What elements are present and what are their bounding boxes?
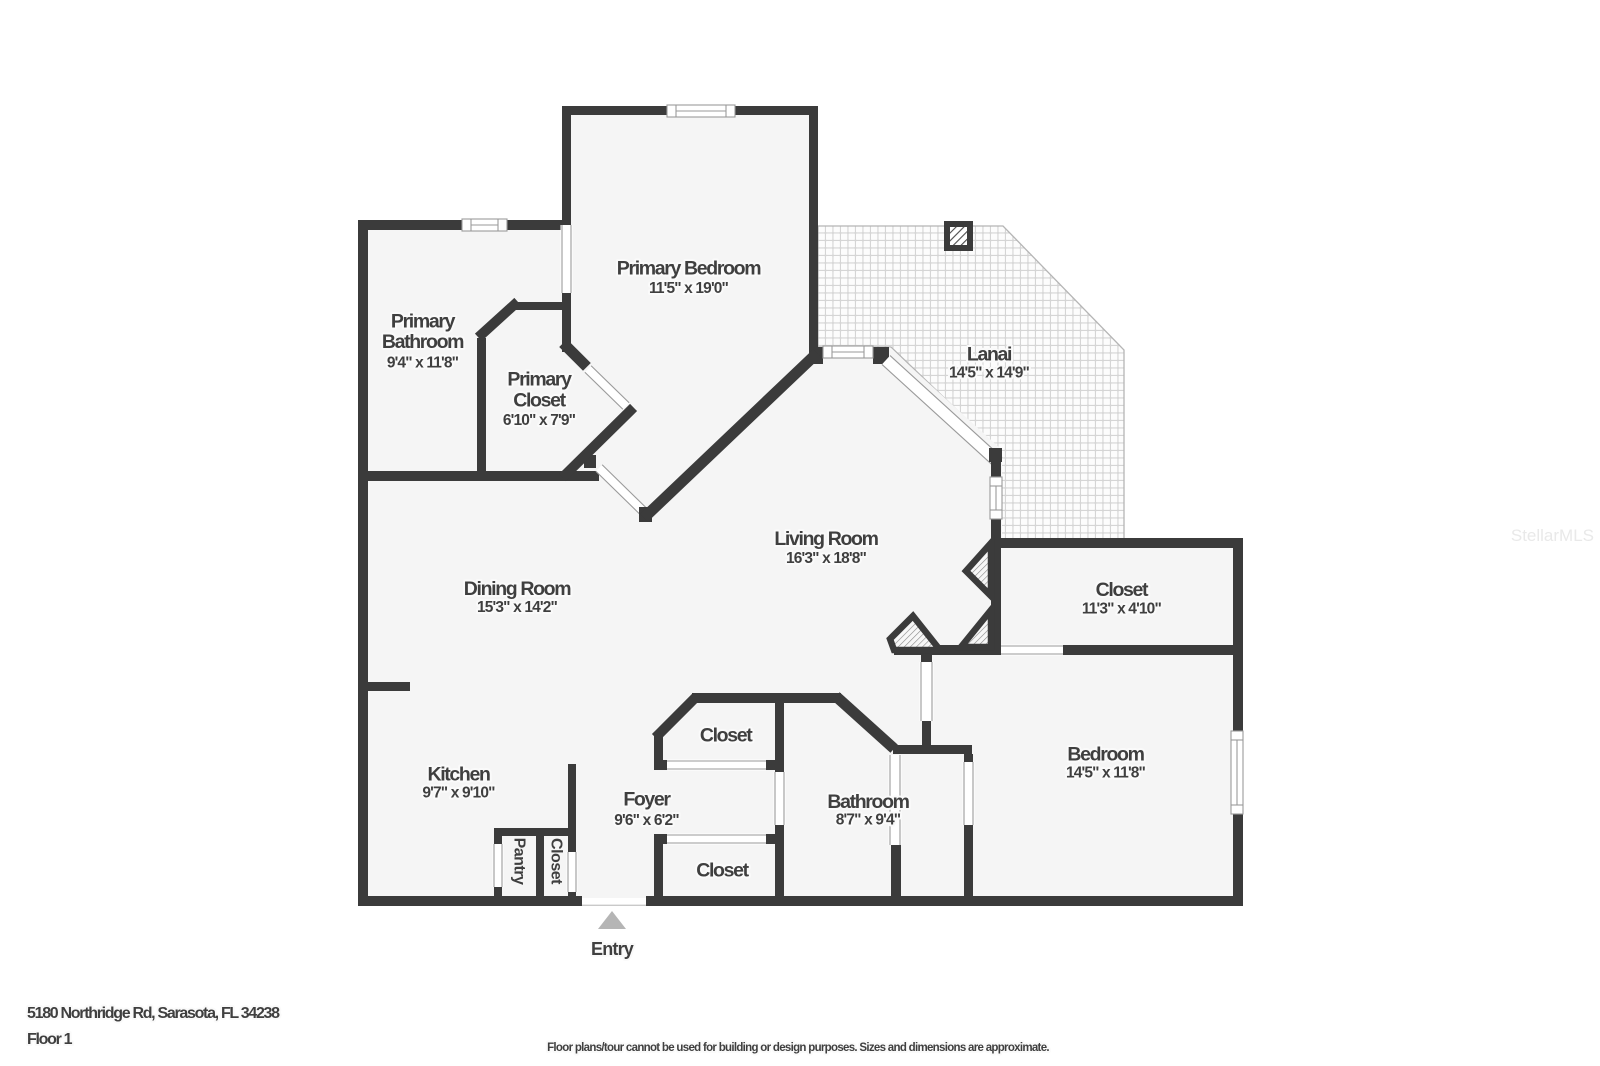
svg-text:StellarMLS: StellarMLS <box>1511 526 1594 545</box>
svg-text:Dining Room: Dining Room <box>464 578 571 600</box>
svg-text:5180 Northridge Rd, Sarasota,: 5180 Northridge Rd, Sarasota, FL 34238 <box>27 1005 280 1022</box>
svg-text:Bathroom: Bathroom <box>382 331 464 353</box>
svg-text:Primary: Primary <box>507 369 572 391</box>
svg-text:Closet: Closet <box>513 390 566 412</box>
svg-text:Pantry: Pantry <box>511 838 528 885</box>
svg-text:Floor plans/tour cannot be use: Floor plans/tour cannot be used for buil… <box>547 1042 1049 1054</box>
svg-text:Closet: Closet <box>1096 579 1149 601</box>
svg-text:Closet: Closet <box>548 838 565 885</box>
svg-text:16'3" x 18'8": 16'3" x 18'8" <box>786 550 866 567</box>
svg-text:8'7" x 9'4": 8'7" x 9'4" <box>836 812 901 829</box>
svg-text:Entry: Entry <box>591 939 634 959</box>
svg-text:11'5" x 19'0": 11'5" x 19'0" <box>649 280 729 297</box>
svg-text:6'10" x 7'9": 6'10" x 7'9" <box>503 412 576 429</box>
svg-text:14'5" x 14'9": 14'5" x 14'9" <box>949 364 1029 381</box>
svg-text:Lanai: Lanai <box>967 344 1012 366</box>
svg-text:9'6" x 6'2": 9'6" x 6'2" <box>614 812 679 829</box>
svg-text:11'3" x 4'10": 11'3" x 4'10" <box>1082 601 1162 618</box>
svg-text:Closet: Closet <box>696 860 749 882</box>
svg-text:Kitchen: Kitchen <box>427 764 489 786</box>
svg-text:Bedroom: Bedroom <box>1067 744 1144 766</box>
svg-text:Primary: Primary <box>391 311 456 333</box>
svg-text:9'7" x 9'10": 9'7" x 9'10" <box>422 784 495 801</box>
svg-text:9'4" x 11'8": 9'4" x 11'8" <box>387 354 459 371</box>
svg-text:Bathroom: Bathroom <box>827 791 909 813</box>
svg-text:15'3" x 14'2": 15'3" x 14'2" <box>477 599 557 616</box>
svg-text:Foyer: Foyer <box>623 789 671 811</box>
svg-text:Floor 1: Floor 1 <box>27 1031 73 1048</box>
svg-text:Primary Bedroom: Primary Bedroom <box>617 257 761 279</box>
svg-text:Closet: Closet <box>700 725 753 747</box>
svg-text:Living Room: Living Room <box>774 528 878 550</box>
svg-text:14'5" x 11'8": 14'5" x 11'8" <box>1066 764 1146 781</box>
